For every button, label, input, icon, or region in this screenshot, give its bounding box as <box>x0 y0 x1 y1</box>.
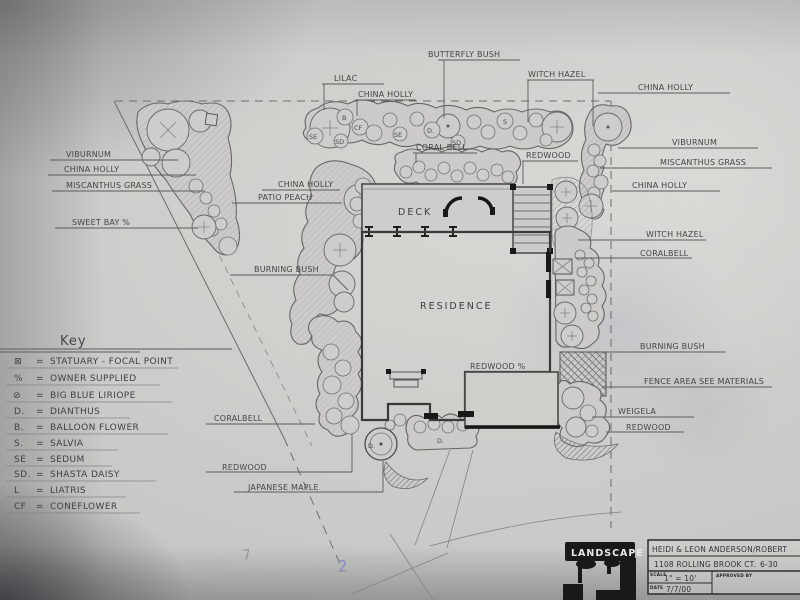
date-value: 7/7/00 <box>666 585 691 594</box>
key-label: SHASTA DAISY <box>50 470 120 480</box>
key-row: % = OWNER SUPPLIED <box>6 374 160 385</box>
label-miscanthus-left: MISCANTHUS GRASS <box>66 181 152 190</box>
label-china-holly-right: CHINA HOLLY <box>632 181 687 190</box>
key-label: SALVIA <box>50 439 84 449</box>
bed-letter: SE <box>309 133 317 141</box>
landscape-plan-drawing: B CF SD SE SE D. SD S <box>0 0 800 600</box>
label-weigela: WEIGELA <box>618 407 656 416</box>
right-planting-bed <box>553 226 606 349</box>
key-equals: = <box>36 391 44 401</box>
logo-text: LANDSCAPE <box>571 548 644 559</box>
label-china-holly-left: CHINA HOLLY <box>64 165 119 174</box>
bed-letter: D. <box>368 442 375 450</box>
label-coralbell-lower: CORALBELL <box>214 414 263 423</box>
key-equals: = <box>36 423 44 433</box>
front-entry-bed: D. D. <box>365 414 479 489</box>
key-symbol-liriope: ⊘ <box>13 391 21 401</box>
key-row: S. = SALVIA <box>6 439 118 450</box>
label-residence: RESIDENCE <box>420 301 493 312</box>
label-viburnum-right: VIBURNUM <box>672 138 717 147</box>
bed-letter: B <box>342 114 346 122</box>
key-symbol-owner-supplied: % <box>14 374 23 384</box>
blue-note: 2 <box>337 556 348 576</box>
key-row: D. = DIANTHUS <box>6 407 130 418</box>
label-deck: DECK <box>398 207 432 218</box>
key-row: ⊠ = STATUARY - FOCAL POINT <box>6 357 178 368</box>
client-address: 1108 ROLLING BROOK CT. <box>654 560 756 569</box>
title-block: LANDSCAPE HEIDI & LEON ANDERSON/ROBERT 1… <box>563 540 800 600</box>
top-left-planting-bed <box>137 101 240 255</box>
key-symbol: S. <box>14 439 23 449</box>
key-row: B. = BALLOON FLOWER <box>6 423 168 434</box>
bed-letter: SD <box>335 138 344 146</box>
label-witch-hazel-right: WITCH HAZEL <box>646 230 704 239</box>
key-row: CF = CONEFLOWER <box>6 502 140 513</box>
label-coralbell-right: CORALBELL <box>640 249 689 258</box>
key-label: BALLOON FLOWER <box>50 423 139 433</box>
key-row: SD. = SHASTA DAISY <box>6 470 156 481</box>
key-equals: = <box>36 486 44 496</box>
approved-by-label: APPROVED BY <box>716 573 753 578</box>
label-redwood-right: REDWOOD <box>626 423 671 432</box>
pencil-note: 7 <box>241 547 252 564</box>
key-row: ⊘ = BIG BLUE LIRIOPE <box>6 391 172 402</box>
key-symbol: SD. <box>14 470 31 480</box>
key-symbol-statuary: ⊠ <box>14 357 22 367</box>
date-note: 6-30 <box>760 560 778 569</box>
photographed-landscape-plan: B CF SD SE SE D. SD S <box>0 0 800 600</box>
key-label: STATUARY - FOCAL POINT <box>50 357 173 367</box>
key-label: SEDUM <box>50 455 85 465</box>
key-equals: = <box>36 455 44 465</box>
key-row: SE = SEDUM <box>6 455 112 466</box>
label-viburnum-left: VIBURNUM <box>66 150 111 159</box>
key-equals: = <box>36 374 44 384</box>
statuary-square <box>205 113 217 125</box>
key-label: DIANTHUS <box>50 407 100 417</box>
key-symbol: L <box>14 486 19 496</box>
key-label: OWNER SUPPLIED <box>50 374 137 384</box>
label-patio-peach: PATIO PEACH <box>258 193 312 202</box>
label-japanese-maple: JAPANESE MAPLE <box>247 483 319 492</box>
label-china-holly-house: CHINA HOLLY <box>278 180 333 189</box>
label-redwood-patio: REDWOOD % <box>470 362 526 371</box>
key-symbol: CF <box>14 502 26 512</box>
margin-notes: 7 2 <box>241 547 348 576</box>
lower-left-planting-bed <box>308 316 362 437</box>
label-sweet-bay: SWEET BAY % <box>72 218 130 227</box>
key-equals: = <box>36 439 44 449</box>
title-block-table: HEIDI & LEON ANDERSON/ROBERT 1108 ROLLIN… <box>648 540 800 594</box>
label-fence-area: FENCE AREA SEE MATERIALS <box>644 377 764 386</box>
key-symbol: SE <box>14 455 26 465</box>
key-equals: = <box>36 502 44 512</box>
key-symbol: B. <box>14 423 24 433</box>
bed-letter: D. <box>427 127 434 135</box>
right-wall-door <box>546 252 551 272</box>
top-center-planting-bed: B CF SD SE SE D. SD S <box>303 100 573 149</box>
label-china-holly-top: CHINA HOLLY <box>358 90 413 99</box>
key-equals: = <box>36 357 44 367</box>
label-burning-bush-right: BURNING BUSH <box>640 342 705 351</box>
key-equals: = <box>36 470 44 480</box>
coral-bell-bed <box>394 149 520 189</box>
label-coral-bell-top: CORAL BELL <box>416 143 467 152</box>
key-label: LIATRIS <box>50 486 86 496</box>
label-burning-bush-left: BURNING BUSH <box>254 265 319 274</box>
client-name: HEIDI & LEON ANDERSON/ROBERT <box>652 545 787 554</box>
key-symbol: D. <box>14 407 25 417</box>
bed-letter: CF <box>354 124 363 132</box>
key-label: CONEFLOWER <box>50 502 118 512</box>
label-witch-hazel-top: WITCH HAZEL <box>528 70 586 79</box>
key-equals: = <box>36 407 44 417</box>
bed-letter: D. <box>437 437 444 445</box>
label-china-holly-top-right: CHINA HOLLY <box>638 83 693 92</box>
deck-stairs <box>510 184 553 254</box>
scale-value: 1" = 10' <box>664 574 696 583</box>
key-title: Key <box>60 334 87 349</box>
right-wall-door <box>546 280 551 298</box>
key-label: BIG BLUE LIRIOPE <box>50 391 136 401</box>
label-lilac: LILAC <box>334 74 358 83</box>
entry-steps <box>386 369 426 387</box>
label-redwood-lower: REDWOOD <box>222 463 267 472</box>
bed-letter: SE <box>394 131 402 139</box>
bed-letter: S <box>503 118 507 126</box>
label-butterfly-bush: BUTTERFLY BUSH <box>428 50 500 59</box>
shade-crescent <box>384 462 428 489</box>
label-redwood-top: REDWOOD <box>526 151 571 160</box>
plant-key-legend: Key ⊠ = STATUARY - FOCAL POINT % = OWNER… <box>0 334 232 513</box>
key-row: L = LIATRIS <box>6 486 126 497</box>
fence-and-weigela-bed <box>554 352 618 460</box>
label-miscanthus-right: MISCANTHUS GRASS <box>660 158 746 167</box>
landscape-logo: LANDSCAPE <box>563 542 644 600</box>
date-label: DATE <box>650 585 663 590</box>
